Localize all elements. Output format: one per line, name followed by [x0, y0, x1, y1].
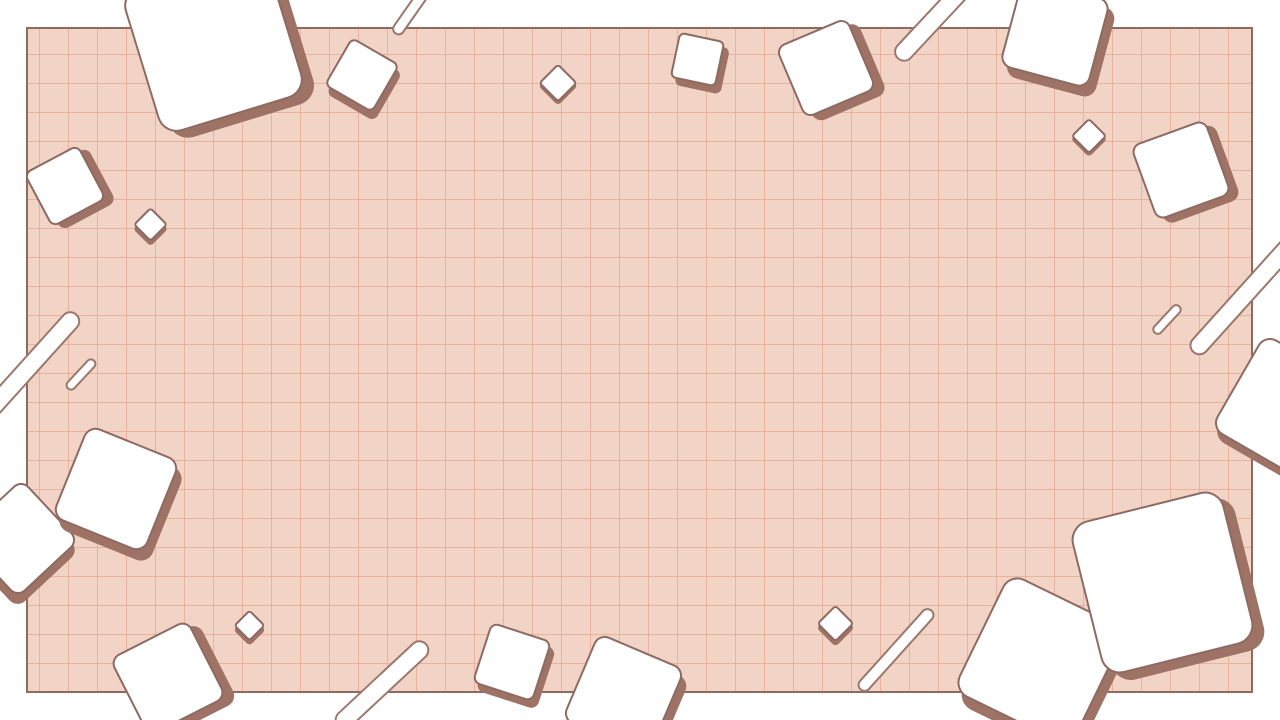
decor-square [669, 31, 725, 87]
slide-decorative-background [0, 0, 1280, 720]
grid-pattern-panel [26, 27, 1253, 693]
